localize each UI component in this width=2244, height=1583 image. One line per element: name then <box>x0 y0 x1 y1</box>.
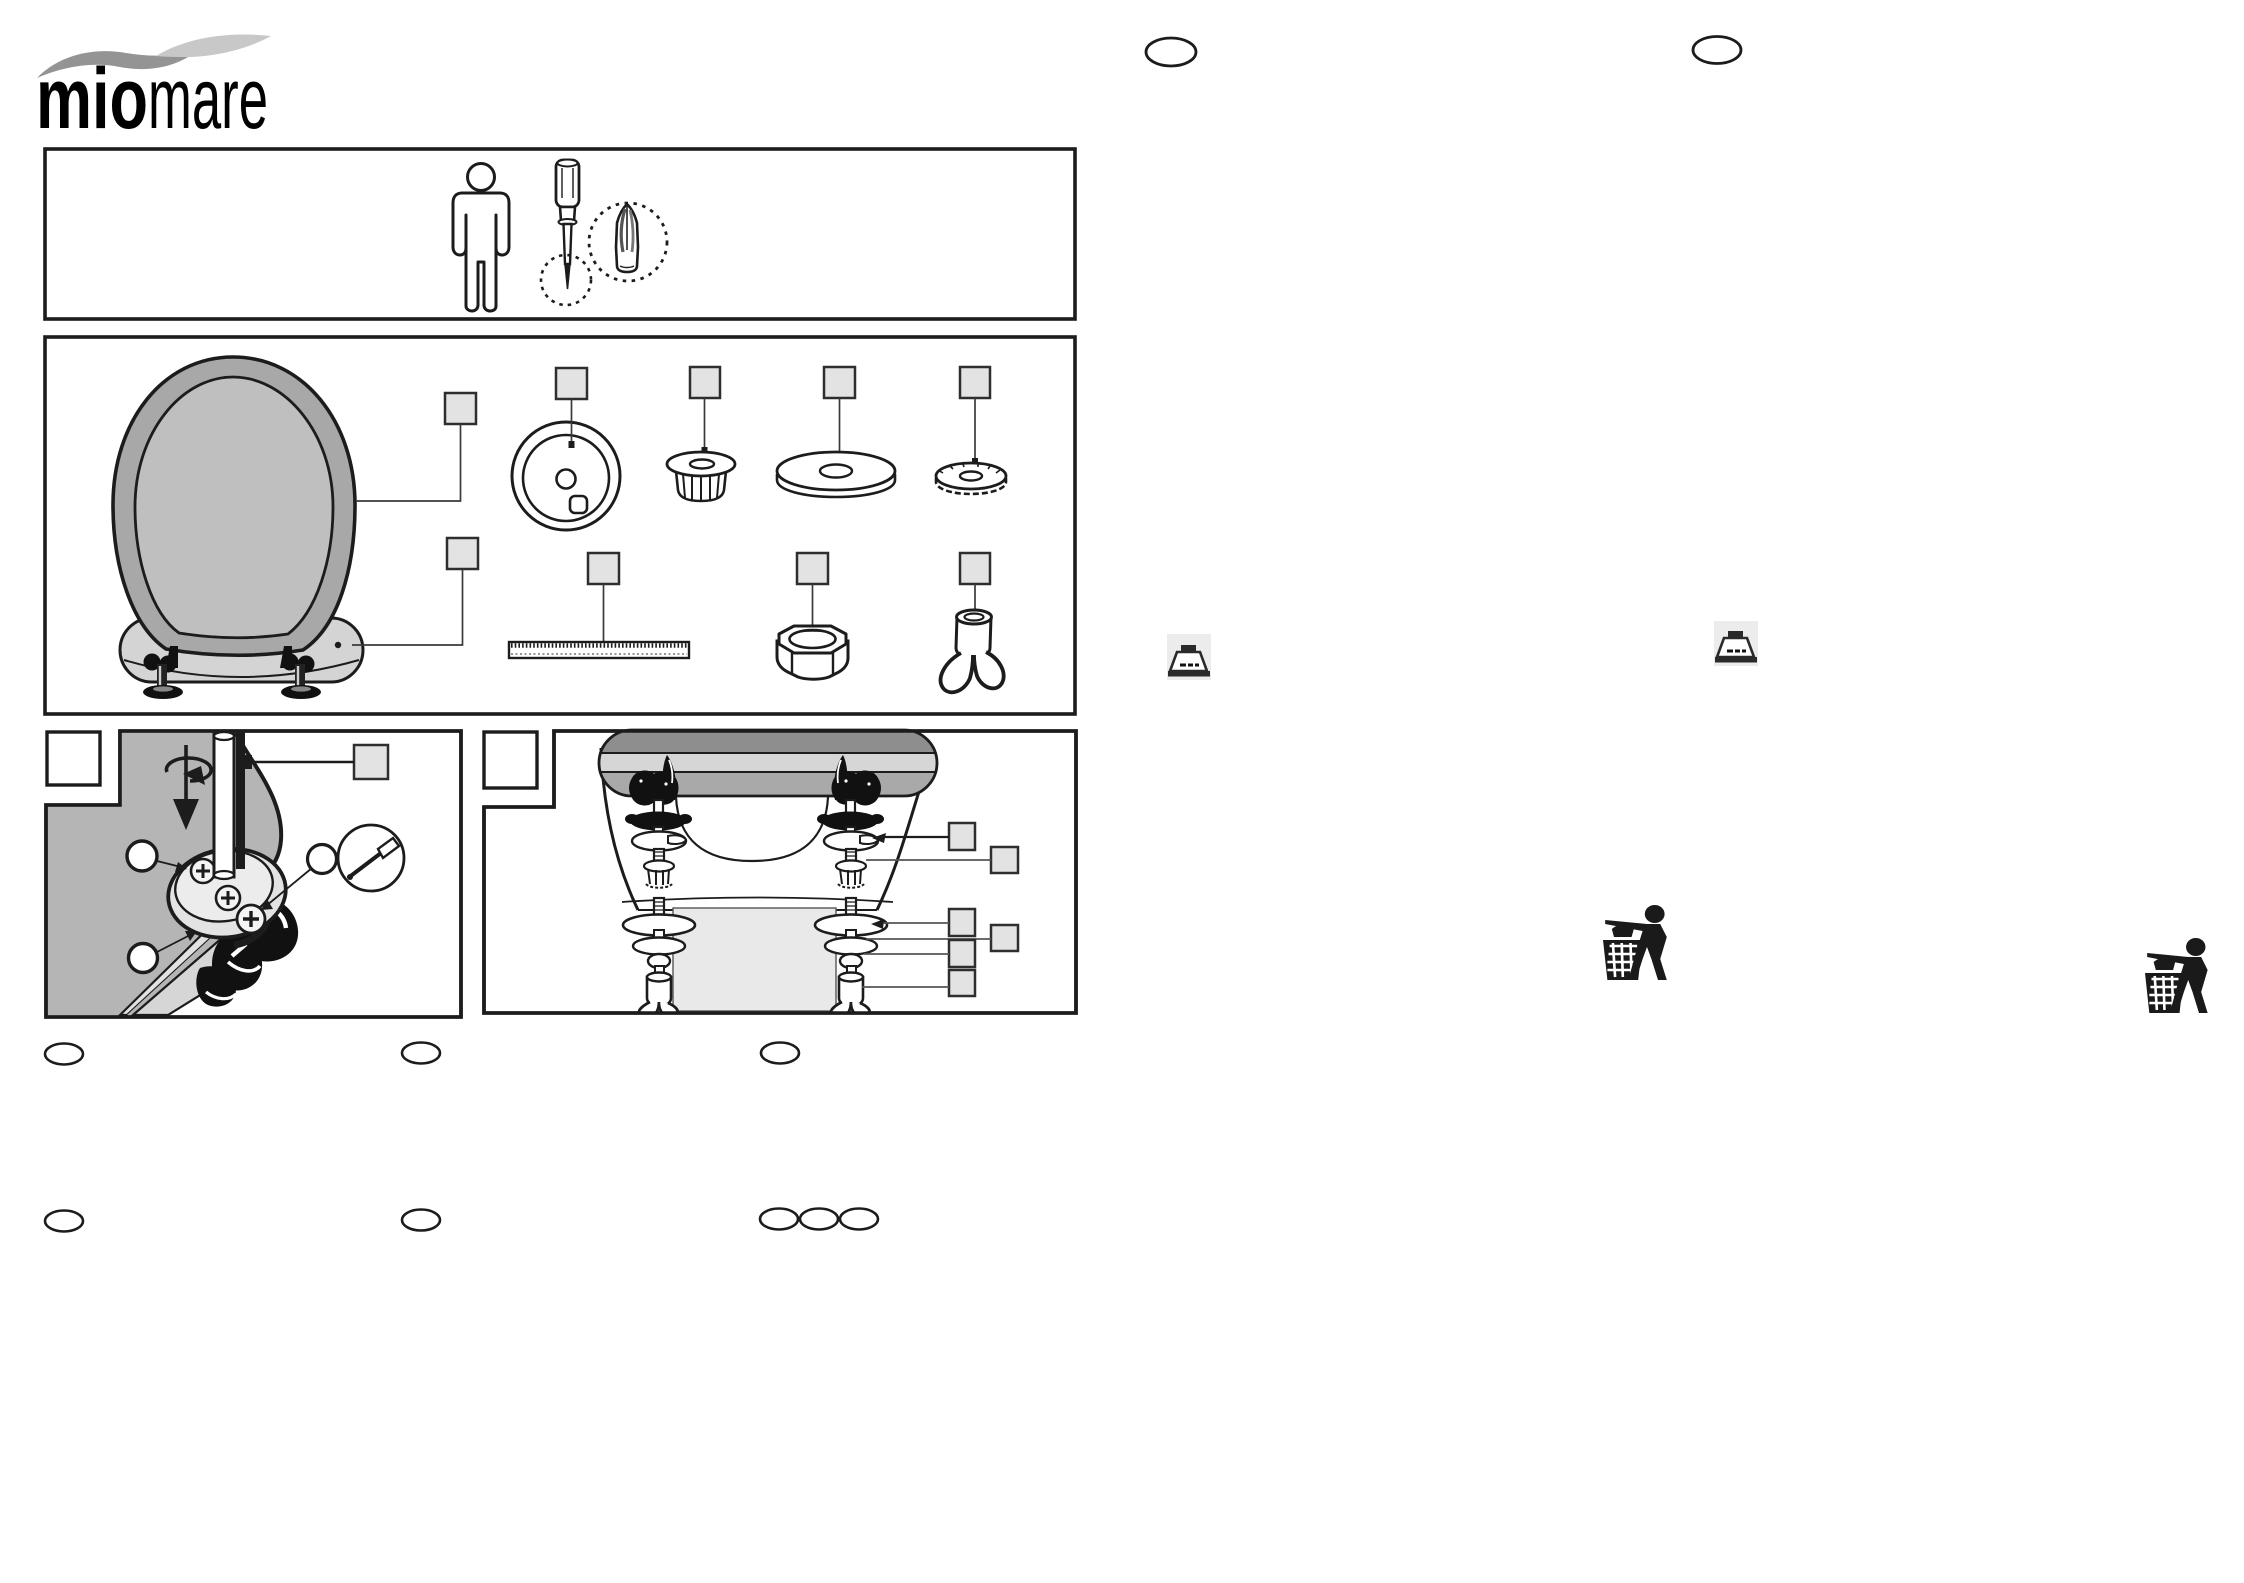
svg-text:mare: mare <box>148 51 268 147</box>
svg-text:mio: mio <box>36 51 148 147</box>
